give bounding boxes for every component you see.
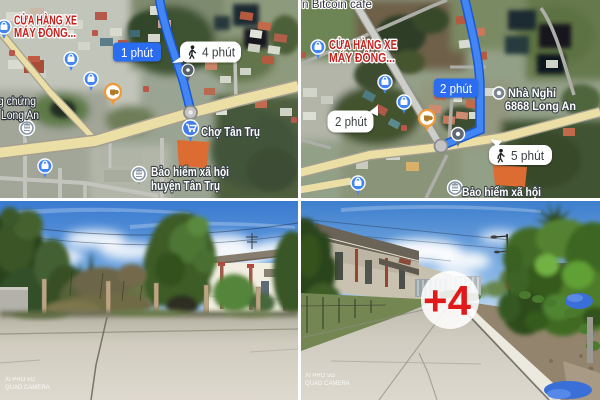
svg-text:Bảo hiểm xã hội: Bảo hiểm xã hội [151, 165, 229, 179]
svg-text:n Bitcoin cafe: n Bitcoin cafe [302, 0, 372, 11]
svg-text:XI PRO 5G: XI PRO 5G [5, 377, 35, 383]
svg-text:CỬA HÀNG XE: CỬA HÀNG XE [329, 37, 397, 52]
svg-text:Bảo hiểm xã hội: Bảo hiểm xã hội [462, 185, 541, 198]
svg-text:huyện Tân Trụ: huyện Tân Trụ [151, 179, 220, 193]
svg-text:QUAD CAMERA: QUAD CAMERA [305, 381, 350, 387]
svg-text:+4: +4 [423, 277, 472, 324]
svg-text:g chứng: g chứng [0, 94, 36, 108]
svg-text:Chợ Tân Trụ: Chợ Tân Trụ [201, 125, 260, 139]
svg-text:Long An: Long An [1, 108, 39, 122]
svg-text:QUAD CAMERA: QUAD CAMERA [5, 385, 50, 391]
svg-text:5 phút: 5 phút [511, 149, 544, 163]
svg-text:Nhà Nghỉ: Nhà Nghỉ [508, 86, 557, 100]
svg-text:6868 Long An: 6868 Long An [505, 99, 576, 113]
svg-text:4 phút: 4 phút [202, 46, 235, 60]
svg-text:1 phút: 1 phút [121, 46, 153, 60]
svg-text:2 phút: 2 phút [440, 82, 472, 96]
svg-text:MÁY ĐÔNG...: MÁY ĐÔNG... [329, 50, 395, 65]
svg-text:MÁY ĐÔNG...: MÁY ĐÔNG... [14, 25, 76, 40]
svg-text:2 phút: 2 phút [335, 115, 367, 129]
svg-text:XI PRO 5G: XI PRO 5G [305, 373, 335, 379]
